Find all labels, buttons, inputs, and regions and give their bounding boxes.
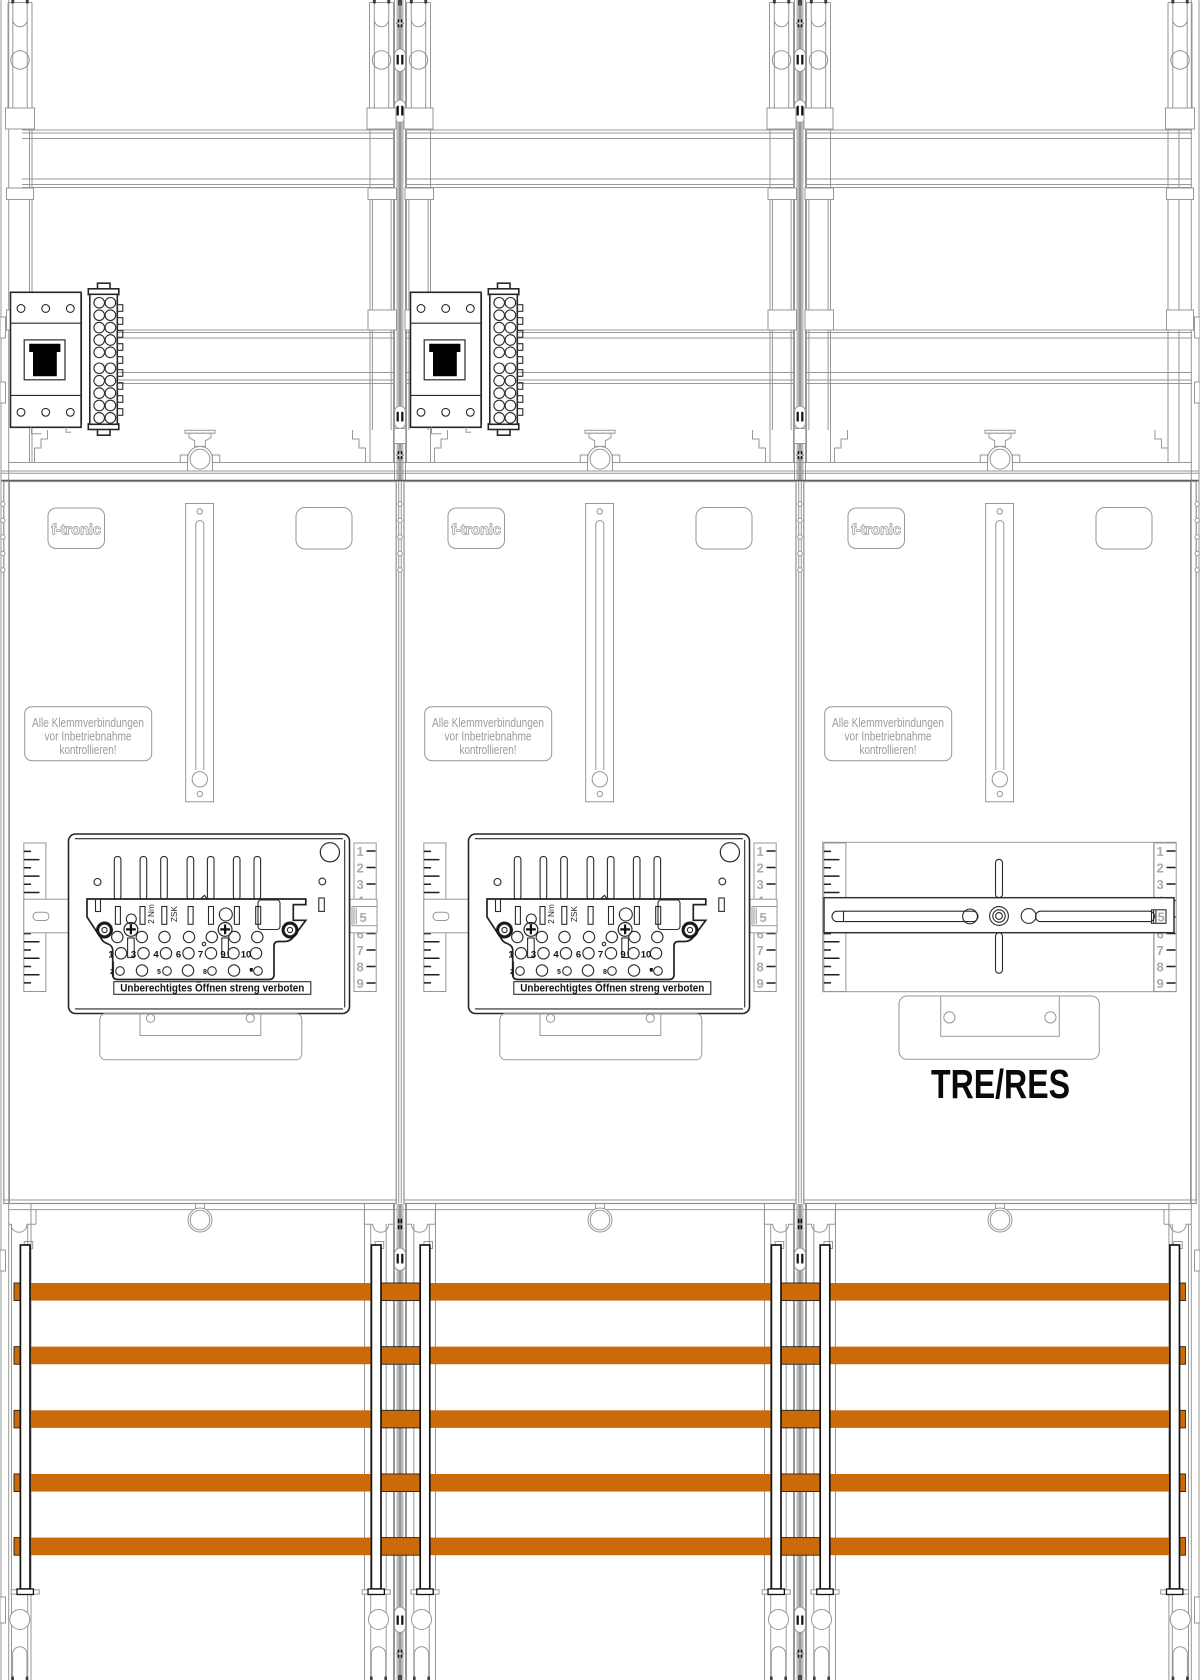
svg-text:5: 5	[1158, 910, 1165, 925]
svg-text:TRE/RES: TRE/RES	[931, 1061, 1070, 1107]
